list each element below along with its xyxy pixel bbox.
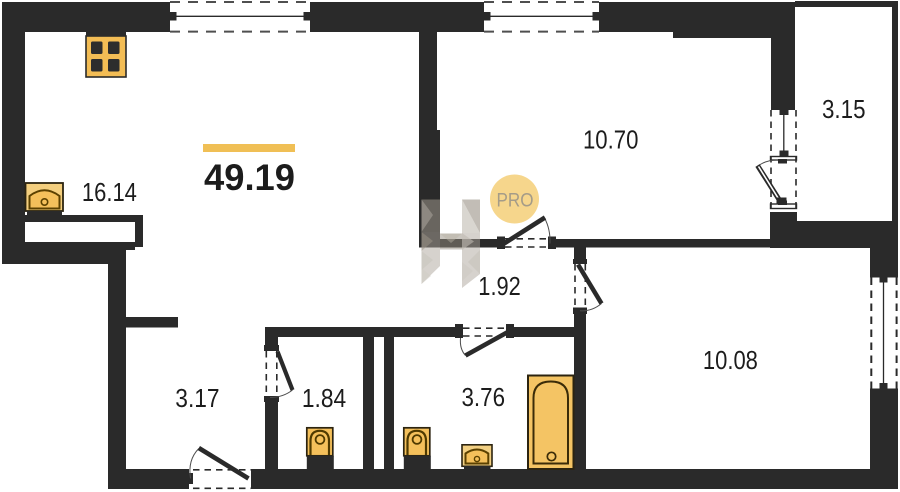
svg-text:1.92: 1.92 (478, 273, 521, 301)
svg-text:3.15: 3.15 (822, 96, 866, 124)
svg-text:3.17: 3.17 (175, 385, 219, 413)
svg-text:16.14: 16.14 (82, 179, 137, 207)
svg-text:1.84: 1.84 (302, 385, 346, 413)
svg-text:49.19: 49.19 (204, 157, 295, 198)
svg-text:3.76: 3.76 (462, 384, 506, 412)
svg-text:PRO: PRO (497, 190, 534, 212)
svg-text:10.70: 10.70 (583, 127, 638, 155)
svg-text:10.08: 10.08 (703, 347, 758, 375)
